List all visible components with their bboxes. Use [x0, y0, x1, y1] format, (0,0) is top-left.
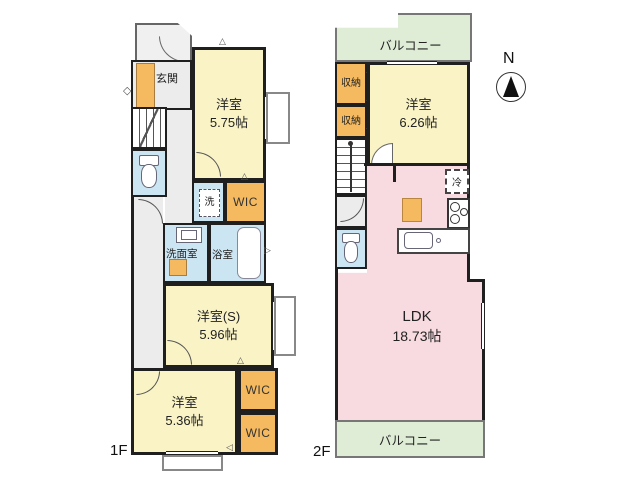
shoe-cabinet — [136, 63, 155, 108]
ldk-wall-left-lower — [335, 269, 338, 423]
wic-lower: WIC — [238, 412, 278, 455]
fridge-label: 冷 — [452, 174, 462, 189]
balcony-bottom: バルコニー — [335, 420, 485, 458]
ldk-wall-top — [364, 163, 470, 166]
ldk-size: 18.73帖 — [392, 327, 441, 345]
kitchen-faucet — [436, 238, 441, 243]
room-size: 5.36帖 — [165, 412, 203, 430]
room-name: 洋室 — [171, 394, 197, 412]
wic-lower-label: WIC — [246, 425, 271, 441]
floor1-label: 1F — [110, 442, 128, 459]
stairs-direction-line — [350, 142, 352, 192]
room-name: 洋室 — [405, 96, 431, 114]
storage-lower: 収納 — [335, 105, 367, 138]
stove-burner — [460, 208, 468, 216]
ldk-wall-stub — [393, 166, 396, 182]
room-size: 6.26帖 — [399, 114, 437, 132]
fridge: 冷 — [445, 169, 469, 194]
kitchen-sink — [404, 232, 433, 249]
compass-circle — [496, 72, 526, 102]
wic-upper: WIC — [225, 181, 266, 223]
ldk-cabinet — [402, 198, 422, 222]
wic-upper-label: WIC — [233, 194, 258, 210]
compass-arrow-icon — [503, 76, 519, 97]
corridor-upper — [165, 110, 192, 227]
bathtub — [237, 227, 261, 279]
washroom-cabinet — [169, 259, 187, 276]
balcony-top-label: バルコニー — [365, 35, 441, 60]
ldk-label-block: LDK 18.73帖 — [355, 304, 479, 348]
ldk-name: LDK — [402, 307, 431, 327]
window-ldk-right — [481, 303, 485, 349]
genkan-label: 玄関 — [156, 70, 178, 86]
storage-upper-label: 収納 — [341, 77, 361, 91]
stove — [447, 198, 470, 229]
bath-window-mark: ▷ — [264, 246, 271, 255]
room-name: 洋室 — [216, 96, 242, 114]
balcony-bottom-label: バルコニー — [379, 430, 441, 449]
ldk-wall-right-lower — [482, 279, 485, 423]
washroom-sink-bowl — [181, 230, 197, 240]
balcony-top: バルコニー — [335, 13, 472, 62]
room-size: 5.96帖 — [199, 326, 237, 344]
stairs-1f — [131, 107, 167, 149]
room-name: 洋室(S) — [197, 308, 240, 326]
wic-mid: WIC — [238, 368, 278, 412]
wic-lower-door-mark: ◁ — [226, 443, 233, 452]
stairs-direction-dot — [348, 141, 353, 146]
floor2-label: 2F — [313, 443, 331, 460]
stove-burner — [450, 214, 460, 224]
vent-mark: △ — [219, 37, 226, 46]
floor-plan-image: 玄関 ◇ 洋室 5.75帖 △ 洗 WIC △ 洗面室 — [0, 0, 640, 480]
stove-burner — [450, 202, 460, 212]
storage-lower-label: 収納 — [341, 115, 361, 129]
wic-door-mark: △ — [241, 172, 248, 181]
room-size: 5.75帖 — [210, 114, 248, 132]
bathroom-label: 浴室 — [212, 247, 233, 262]
laundry-room: 洗 — [192, 181, 225, 223]
bay-window-mid — [274, 296, 296, 356]
step-1f — [162, 455, 223, 471]
toilet-bowl-1f — [141, 164, 157, 188]
washer-box: 洗 — [199, 189, 220, 217]
room-s-window-mark: △ — [237, 356, 244, 365]
toilet-bowl-2f — [344, 241, 358, 263]
window-room626 — [387, 61, 437, 65]
storage-upper: 収納 — [335, 62, 367, 105]
wic-mid-label: WIC — [246, 382, 271, 398]
laundry-label: 洗 — [205, 196, 215, 210]
door-pivot-mark: ◇ — [123, 86, 131, 97]
bay-window-upper — [266, 92, 290, 144]
compass-n-label: N — [503, 50, 515, 68]
